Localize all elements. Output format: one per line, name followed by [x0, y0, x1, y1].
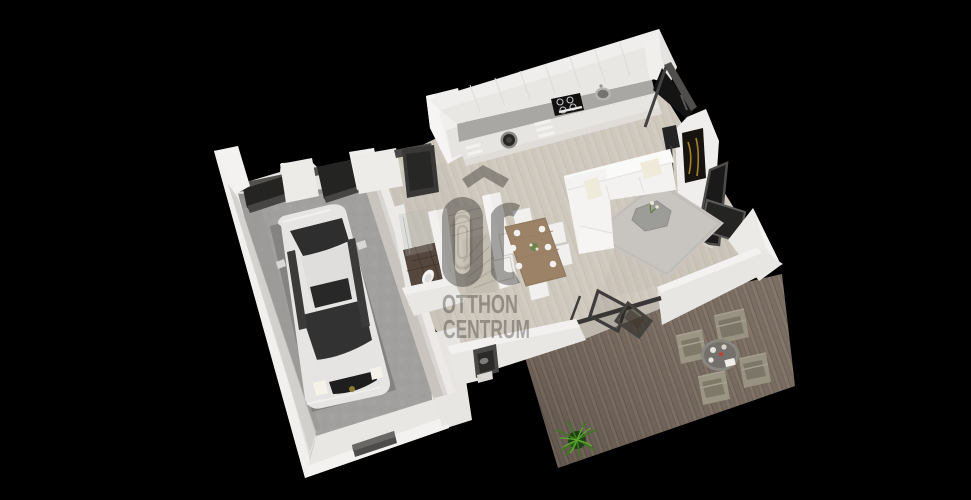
- svg-text:CENTRUM: CENTRUM: [443, 314, 530, 344]
